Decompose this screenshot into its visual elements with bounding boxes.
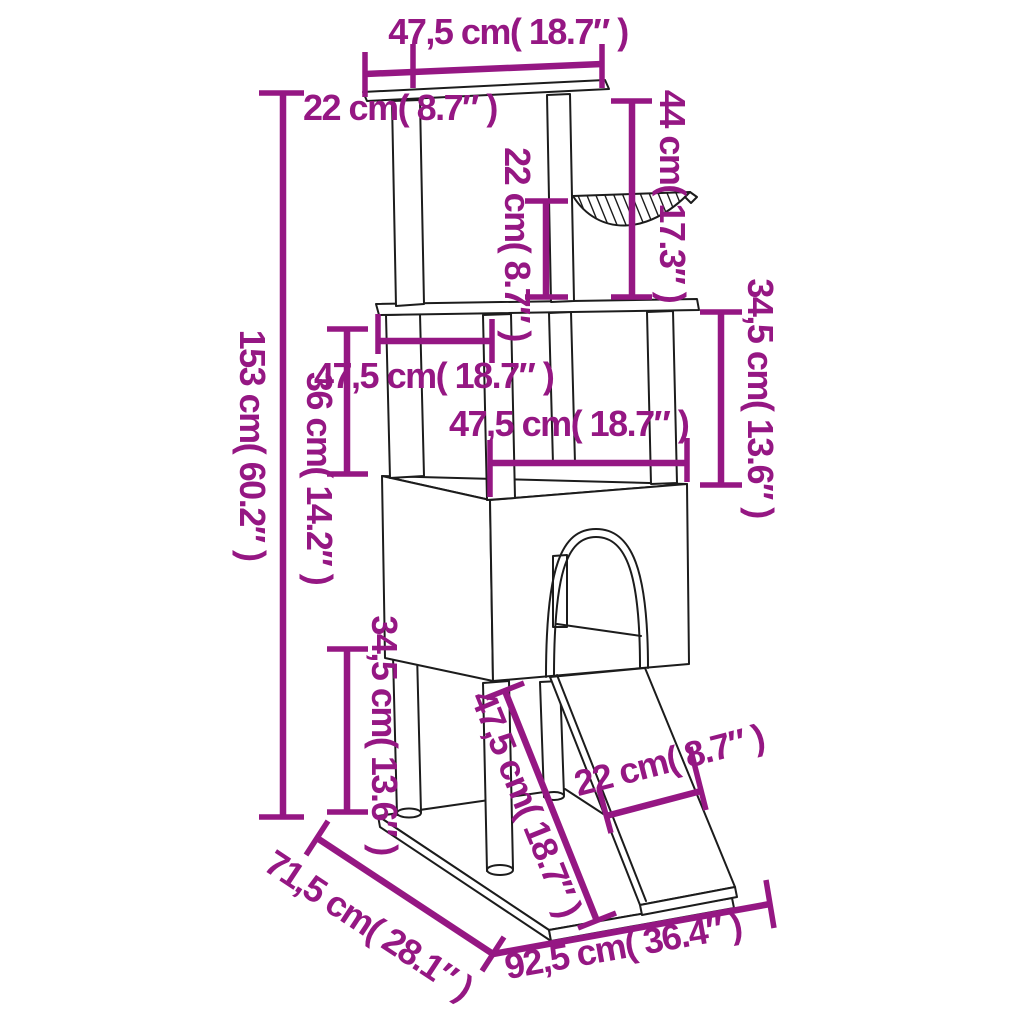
dim-label-hammock-height: 44 cm( 17.3″ ) xyxy=(652,90,693,303)
dim-bottom-tier-height: 34,5 cm( 13.6″ ) xyxy=(327,615,405,855)
dim-label-total-height: 153 cm( 60.2″ ) xyxy=(232,330,273,561)
dim-label-platform-depth: 47,5 cm( 18.7″ ) xyxy=(314,355,554,396)
dim-label-top-depth: 22 cm( 8.7″ ) xyxy=(303,87,497,128)
dim-total-height: 153 cm( 60.2″ ) xyxy=(232,93,304,817)
dimension-diagram: 47,5 cm( 18.7″ ) 22 cm( 8.7″ ) 44 cm( 17… xyxy=(0,0,1024,1024)
dim-label-bottom-tier-height: 34,5 cm( 13.6″ ) xyxy=(364,615,405,855)
dim-top-depth: 22 cm( 8.7″ ) xyxy=(303,87,497,128)
dim-label-house-width: 47,5 cm( 18.7″ ) xyxy=(449,403,689,444)
cat-house xyxy=(382,476,689,681)
cat-tree-dimension-drawing: 47,5 cm( 18.7″ ) 22 cm( 8.7″ ) 44 cm( 17… xyxy=(0,0,1024,1024)
dim-label-hammock-to-platform: 22 cm( 8.7″ ) xyxy=(497,147,538,341)
dim-label-right-tier-height: 34,5 cm( 13.6″ ) xyxy=(740,278,781,518)
dim-right-tier-height: 34,5 cm( 13.6″ ) xyxy=(700,278,781,518)
dim-label-mid-tier-height: 36 cm( 14.2″ ) xyxy=(299,372,340,585)
dim-label-top-width: 47,5 cm( 18.7″ ) xyxy=(388,11,628,52)
